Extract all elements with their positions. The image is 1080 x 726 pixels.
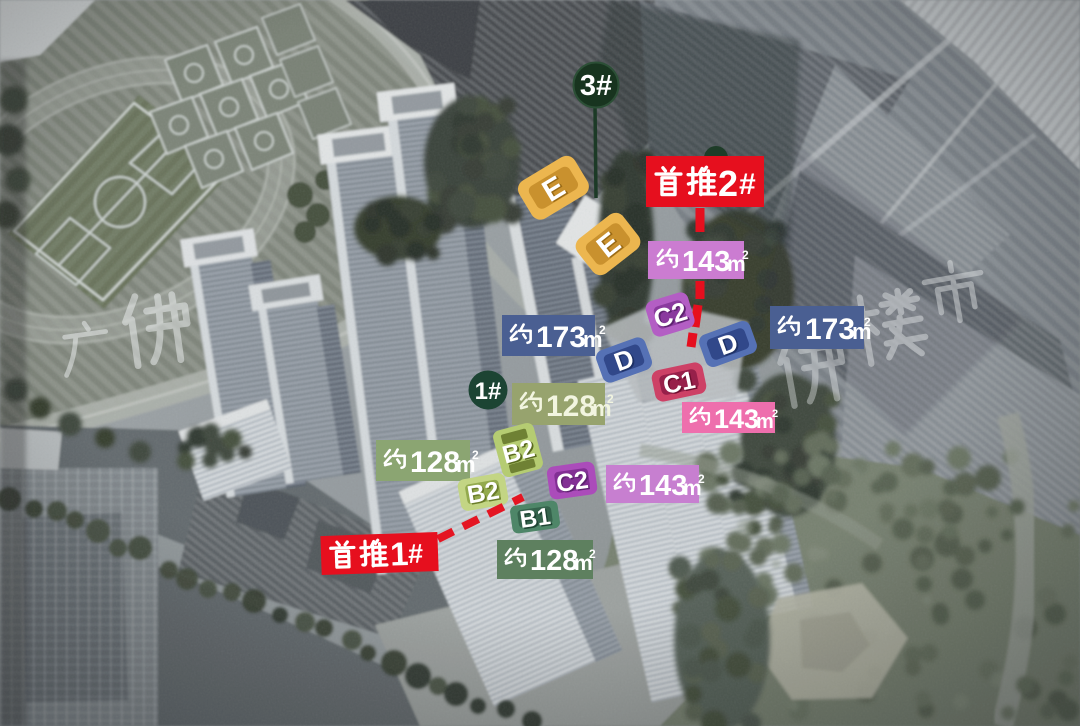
svg-text:143: 143	[639, 470, 687, 502]
svg-text:2: 2	[599, 323, 606, 337]
svg-text:B2: B2	[465, 476, 501, 509]
svg-text:2: 2	[698, 472, 705, 486]
svg-text:3#: 3#	[580, 70, 612, 102]
svg-text:#: #	[408, 539, 424, 570]
svg-text:C2: C2	[555, 466, 591, 498]
svg-text:173: 173	[805, 313, 855, 346]
svg-text:1#: 1#	[475, 378, 502, 405]
svg-text:2: 2	[589, 547, 596, 561]
svg-text:143: 143	[682, 246, 730, 278]
svg-text:2: 2	[864, 315, 871, 329]
svg-text:128: 128	[530, 545, 578, 577]
svg-text:2: 2	[772, 408, 778, 420]
svg-text:128: 128	[546, 390, 596, 423]
svg-text:2: 2	[472, 448, 479, 462]
svg-text:173: 173	[536, 321, 586, 354]
svg-text:2: 2	[607, 392, 614, 406]
svg-text:1: 1	[389, 535, 409, 573]
svg-text:2: 2	[718, 163, 738, 204]
svg-text:#: #	[739, 168, 756, 201]
svg-text:128: 128	[410, 446, 460, 479]
svg-text:B1: B1	[518, 503, 552, 534]
svg-text:2: 2	[742, 248, 749, 262]
svg-text:143: 143	[714, 404, 759, 434]
